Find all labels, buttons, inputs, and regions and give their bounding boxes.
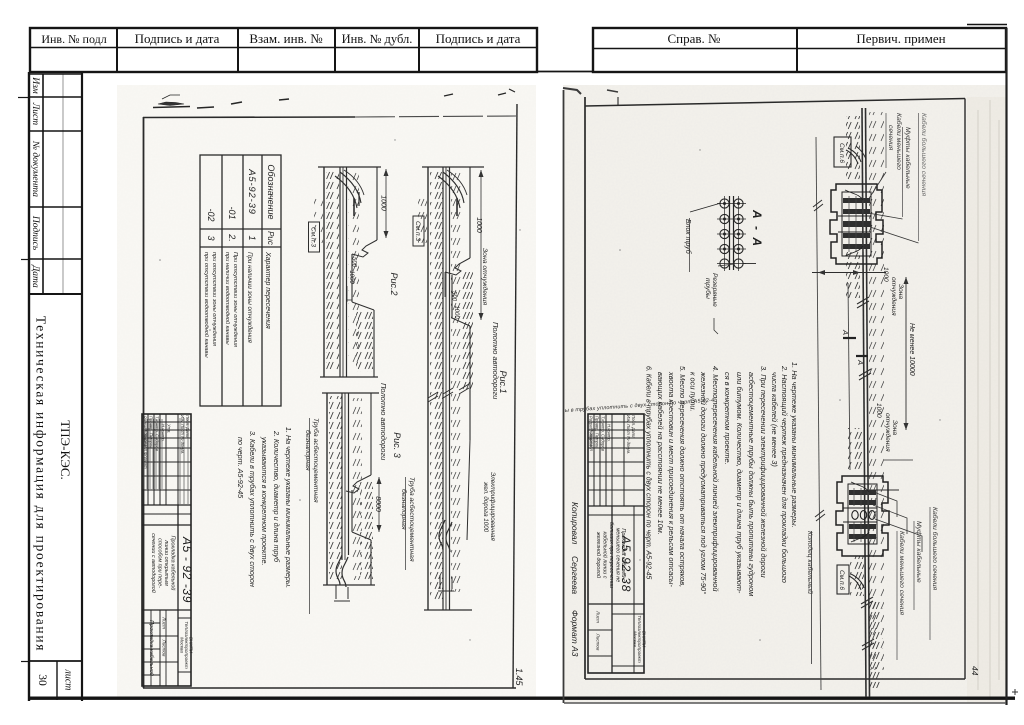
svg-text:2. Количество, диаметр и длина: 2. Количество, диаметр и длина труб <box>272 430 281 563</box>
svg-text:2.: 2. <box>227 233 237 242</box>
svg-text:или битумом. Количество, диаме: или битумом. Количество, диаметр и длина… <box>735 372 744 594</box>
svg-text:Изм: Изм <box>30 76 40 93</box>
svg-text:1000: 1000 <box>380 195 387 211</box>
svg-text:44: 44 <box>970 666 980 676</box>
svg-text:отчуждения: отчуждения <box>884 413 892 452</box>
svg-text:При наличии зоны отчуждения: При наличии зоны отчуждения <box>246 252 253 343</box>
svg-text:Рис.2: Рис.2 <box>389 272 399 295</box>
svg-text:См.п.3: См.п.3 <box>310 227 317 247</box>
svg-text:Изм Лист № докум.: Изм Лист № докум. <box>626 415 631 454</box>
svg-text:Инв. № подл: Инв. № подл <box>41 32 106 46</box>
svg-text:Кабели меньшего: Кабели меньшего <box>895 113 903 170</box>
svg-text:Формат А3: Формат А3 <box>570 610 580 657</box>
svg-text:хвоста крестовин и мест присое: хвоста крестовин и мест присоединения к … <box>667 371 676 587</box>
svg-text:А: А <box>856 359 865 365</box>
svg-text:Подп. Дата: Подп. Дата <box>631 415 636 439</box>
svg-text:Справ. №: Справ. № <box>668 31 721 46</box>
svg-text:при отсутствии водоотводной ка: при отсутствии водоотводной канавы <box>203 252 210 358</box>
svg-text:Инв. № дубл.: Инв. № дубл. <box>342 32 413 46</box>
svg-text:Муфты кабельные: Муфты кабельные <box>904 127 912 189</box>
svg-text:3. При пересечении электрифици: 3. При пересечении электрифицированной ж… <box>759 366 768 578</box>
svg-text:1. На чертеже указаны минималь: 1. На чертеже указаны минимальные размер… <box>284 427 293 588</box>
svg-text:Кабели меньшего сечения: Кабели меньшего сечения <box>898 531 906 615</box>
svg-text:по черт. А5-92-45: по черт. А5-92-45 <box>236 437 245 499</box>
svg-text:Рис. 3: Рис. 3 <box>392 432 402 458</box>
svg-text:Н.контр.: Н.контр. <box>607 424 612 442</box>
svg-text:Москва: Москва <box>633 631 638 647</box>
svg-text:Зона отчуждения: Зона отчуждения <box>481 248 489 306</box>
svg-text:Подп. Дата: Подп. Дата <box>185 415 190 439</box>
svg-text:Муфты кабельные: Муфты кабельные <box>915 521 923 583</box>
svg-text:Копировал: Копировал <box>143 430 148 451</box>
svg-text:1.45: 1.45 <box>514 668 524 687</box>
svg-text:Кабели большего сечения: Кабели большего сечения <box>931 507 939 591</box>
svg-text:Кабели большего сечения: Кабели большего сечения <box>920 113 928 197</box>
svg-text:-02: -02 <box>206 208 216 221</box>
svg-text:Зона: Зона <box>897 284 904 299</box>
svg-text:ТПЭ-КЭС.: ТПЭ-КЭС. <box>58 420 73 480</box>
svg-text:к оси пути.: к оси пути. <box>689 372 698 412</box>
svg-text:Колодец кабельный: Колодец кабельный <box>806 531 814 594</box>
svg-text:Прокладка кабельной: Прокладка кабельной <box>170 536 177 591</box>
svg-text:сечении с автодорогой: сечении с автодорогой <box>150 533 157 593</box>
svg-text:Листов: Листов <box>596 633 601 651</box>
svg-text:Лист: Лист <box>596 610 601 623</box>
svg-text:безнапорная: безнапорная <box>400 489 408 530</box>
svg-text:-01: -01 <box>227 206 237 219</box>
svg-text:сечения: сечения <box>887 125 894 151</box>
svg-text:1: 1 <box>247 235 257 240</box>
svg-text:Рис: Рис <box>266 231 275 245</box>
svg-text:Утв.: Утв. <box>167 424 172 434</box>
svg-text:меньшего сечения не: меньшего сечения не <box>615 528 621 583</box>
svg-text:Зона: Зона <box>891 420 898 435</box>
svg-text:Резервные: Резервные <box>711 273 718 307</box>
svg-text:Провер. Петров: Провер. Петров <box>595 416 600 449</box>
svg-text:Изм Лист № докум.: Изм Лист № докум. <box>180 415 185 454</box>
svg-text:жел. дорога 1000: жел. дорога 1000 <box>482 481 489 533</box>
svg-text:А: А <box>841 329 850 335</box>
svg-text:трубы: трубы <box>704 278 712 299</box>
svg-text:500: 500 <box>451 291 457 302</box>
svg-text:Обозначение: Обозначение <box>266 164 276 219</box>
svg-text:ся в конкретном проекте.: ся в конкретном проекте. <box>723 372 732 465</box>
svg-text:При отсутствии зоны отчуждения: При отсутствии зоны отчуждения <box>232 252 238 347</box>
svg-text:железной дорогой: железной дорогой <box>595 531 602 578</box>
svg-text:Провер. Петров: Провер. Петров <box>149 416 154 449</box>
svg-text:Листов: Листов <box>162 639 167 657</box>
svg-text:Труба асбестоцементная: Труба асбестоцементная <box>408 477 416 562</box>
svg-text:4. Место пересечения кабельной: 4. Место пересечения кабельной линией эл… <box>711 366 720 592</box>
svg-text:3: 3 <box>206 235 216 240</box>
svg-text:См.п.6: См.п.6 <box>838 143 845 163</box>
svg-text:Подпись: Подпись <box>30 215 41 251</box>
svg-text:безнапорная: безнапорная <box>304 430 312 471</box>
svg-text:отчуждения: отчуждения <box>890 277 898 316</box>
svg-text:больших при пересечении: больших при пересечении <box>608 522 614 588</box>
svg-text:1000: 1000 <box>475 217 482 233</box>
svg-text:лист: лист <box>63 668 74 690</box>
svg-text:1000: 1000 <box>882 267 889 282</box>
svg-text:Копировал: Копировал <box>570 502 580 544</box>
svg-text:5. Место пересечения должно от: 5. Место пересечения должно отстоять от … <box>678 366 687 587</box>
svg-text:1000: 1000 <box>348 270 354 284</box>
svg-text:Не менее 10000: Не менее 10000 <box>908 323 915 376</box>
svg-text:6. Кабели в трубах уплотнить с: 6. Кабели в трубах уплотнить с двух стор… <box>645 366 653 579</box>
svg-text:вающих кабелей на расстоянии н: вающих кабелей на расстоянии не менее 10… <box>656 372 665 535</box>
svg-text:Прокладка кабельной: Прокладка кабельной <box>148 620 155 676</box>
svg-text:3. Кабели в трубах уплотнить с: 3. Кабели в трубах уплотнить с двух стор… <box>248 431 257 587</box>
svg-text:500: 500 <box>351 257 357 268</box>
svg-text:Рис.1: Рис.1 <box>498 370 508 393</box>
svg-text:Электрифицированная: Электрифицированная <box>489 472 496 541</box>
svg-text:Характер пересечения: Характер пересечения <box>264 251 271 329</box>
svg-text:См.п.3: См.п.3 <box>414 221 421 241</box>
svg-text:кабельной линии с: кабельной линии с <box>602 532 609 579</box>
svg-text:Копировал: Копировал <box>589 430 594 451</box>
svg-text:№ документа: № документа <box>30 140 41 197</box>
svg-text:Взам. инв. №: Взам. инв. № <box>249 31 322 46</box>
svg-text:30: 30 <box>36 674 48 686</box>
svg-text:Труба асбестоцементная: Труба асбестоцементная <box>312 418 320 503</box>
svg-text:1000: 1000 <box>453 305 459 319</box>
svg-text:1000: 1000 <box>875 403 882 418</box>
svg-text:асбестоцементные трубы должны: асбестоцементные трубы должны быть пропи… <box>747 372 756 596</box>
svg-text:линии открытым: линии открытым <box>163 539 169 586</box>
svg-text:8000: 8000 <box>374 496 381 512</box>
svg-text:Н.контр.: Н.контр. <box>161 424 166 442</box>
svg-text:Лист: Лист <box>162 616 167 629</box>
svg-text:Т.контр. Сидоров: Т.контр. Сидоров <box>601 416 606 452</box>
svg-text:Техническая информация для про: Техническая информация для проектировани… <box>34 316 49 652</box>
svg-text:1. На чертеже указаны минималь: 1. На чертеже указаны минимальные размер… <box>790 362 799 528</box>
svg-text:Сергеева: Сергеева <box>570 556 580 594</box>
svg-text:Полотно автодороги: Полотно автодороги <box>379 383 388 461</box>
svg-text:2. Настоящий чертеж предназнач: 2. Настоящий чертеж предназначен для про… <box>780 365 789 583</box>
svg-text:железной дороги должно предусм: железной дороги должно предусматриваться… <box>699 371 708 594</box>
svg-text:А5 - 92 -39: А5 - 92 -39 <box>180 536 194 603</box>
svg-text:Подпись и дата: Подпись и дата <box>135 31 220 46</box>
svg-text:при отсутствии зоны отчуждения: при отсутствии зоны отчуждения <box>211 252 217 346</box>
svg-text:Первич. примен: Первич. примен <box>856 31 945 46</box>
svg-text:Лист: Лист <box>30 102 40 125</box>
svg-text:числа кабелей (не менее 3): числа кабелей (не менее 3) <box>770 372 779 467</box>
svg-text:Т.контр. Сидоров: Т.контр. Сидоров <box>155 416 160 452</box>
svg-text:А - А: А - А <box>750 209 764 248</box>
svg-text:Формат: Формат <box>143 452 148 469</box>
svg-text:указываются в конкретном проек: указываются в конкретном проекте. <box>260 436 269 565</box>
svg-text:Москва: Москва <box>180 637 185 653</box>
svg-text:Блок труб: Блок труб <box>684 219 692 255</box>
svg-text:способом при пере-: способом при пере- <box>157 538 163 588</box>
svg-text:См.п.6: См.п.6 <box>838 570 845 590</box>
svg-text:Дата: Дата <box>30 264 40 288</box>
svg-text:при наличии водоотводной канав: при наличии водоотводной канавы <box>224 252 231 345</box>
svg-text:Подпись и дата: Подпись и дата <box>436 31 521 46</box>
svg-text:А5-92-39: А5-92-39 <box>246 168 257 214</box>
